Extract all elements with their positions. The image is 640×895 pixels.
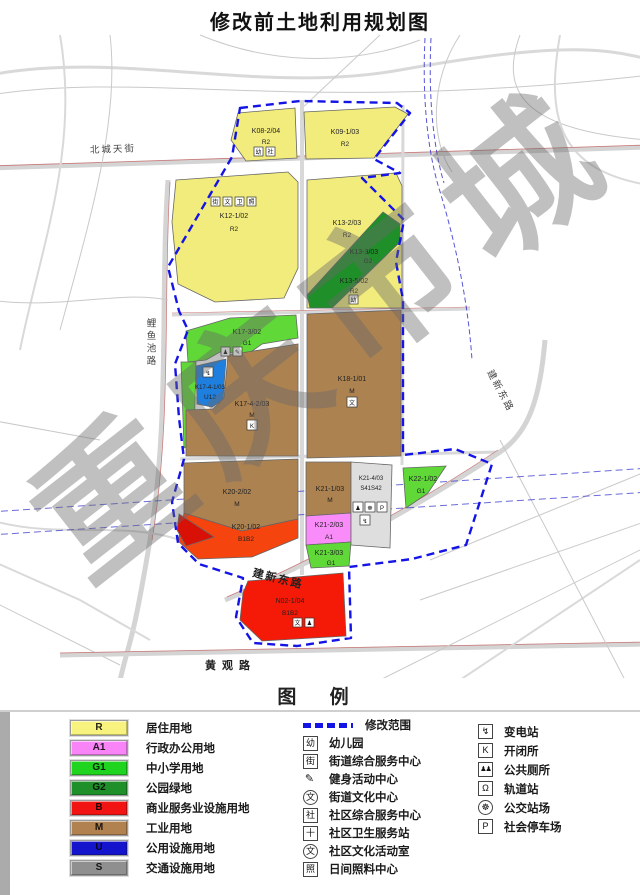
symbol-label: 街道文化中心 bbox=[329, 789, 398, 805]
culture-icon: 文 bbox=[347, 397, 357, 407]
legend-row-school: G1 中小学用地 bbox=[70, 758, 250, 778]
parcel-code: M bbox=[349, 388, 354, 395]
svg-text:K: K bbox=[250, 424, 254, 430]
svg-text:♟: ♟ bbox=[307, 620, 312, 627]
land-use-map: K08-2/04 R2 幼社 K09-1/03 R2 街文 卫照 K12-1/0… bbox=[0, 0, 640, 678]
svg-text:P: P bbox=[380, 506, 384, 512]
parcel-code: M bbox=[234, 501, 239, 508]
landuse-label: 交通设施用地 bbox=[146, 860, 215, 876]
switch-station-icon: K bbox=[478, 743, 493, 758]
legend-row-industrial: M 工业用地 bbox=[70, 818, 250, 838]
legend-symbols-column: 修改范围 幼 幼儿园 街 街道综合服务中心 ✎ 健身活动中心 文 街道文化中心 … bbox=[303, 716, 421, 878]
legend-row-fitness-center: ✎ 健身活动中心 bbox=[303, 770, 421, 788]
svg-text:♟: ♟ bbox=[355, 505, 360, 512]
landuse-swatch: G2 bbox=[70, 780, 128, 796]
road-label-huangguanlu: 黄观路 bbox=[205, 658, 256, 672]
landuse-label: 居住用地 bbox=[146, 720, 192, 736]
page-title: 修改前土地利用规划图 bbox=[0, 6, 640, 35]
symbol-label: 修改范围 bbox=[365, 717, 411, 733]
parcel-code: A1 bbox=[325, 534, 333, 541]
road-label-beichengtianjie: 北城天街 bbox=[90, 142, 136, 156]
svg-text:☸: ☸ bbox=[367, 505, 372, 512]
parcel-code: G2 bbox=[364, 258, 373, 265]
facility-label: 开闭所 bbox=[504, 743, 539, 759]
community-health-station-icon: 十 bbox=[303, 826, 318, 841]
parcel-code: R2 bbox=[343, 232, 352, 239]
parcel-id: K17-4-1/03 bbox=[195, 385, 225, 391]
facility-label: 公交站场 bbox=[504, 800, 550, 816]
community-culture-room-icon: 文 bbox=[303, 844, 318, 859]
landuse-swatch: A1 bbox=[70, 740, 128, 756]
legend-row-street-culture-center: 文 街道文化中心 bbox=[303, 788, 421, 806]
symbol-label: 日间照料中心 bbox=[329, 861, 398, 877]
parcel-id: K20-2/02 bbox=[223, 489, 252, 496]
parcel-id: N02-1/04 bbox=[276, 598, 305, 605]
parcel-id: K09-1/03 bbox=[331, 129, 360, 136]
legend-row-residential: R 居住用地 bbox=[70, 718, 250, 738]
legend-row-health-station: 十 社区卫生服务站 bbox=[303, 824, 421, 842]
parcel-id: K21-4/03 bbox=[359, 476, 384, 482]
parcel-id: K13-2/03 bbox=[333, 220, 362, 227]
legend-row-commercial: B 商业服务业设施用地 bbox=[70, 798, 250, 818]
legend-row-transport: S 交通设施用地 bbox=[70, 858, 250, 878]
parcel-id: K13-5/02 bbox=[340, 278, 369, 285]
legend-row-community-service-center: 社 社区综合服务中心 bbox=[303, 806, 421, 824]
parcel-id: K12-1/02 bbox=[220, 213, 249, 220]
legend-row-rail-station: Ω 轨道站 bbox=[478, 779, 562, 798]
legend-row-daycare-center: 照 日间照料中心 bbox=[303, 860, 421, 878]
parcel-code: R2 bbox=[230, 226, 239, 233]
svg-text:幼: 幼 bbox=[255, 148, 261, 156]
parcel-id: K21-2/03 bbox=[315, 522, 344, 529]
parcel-code: S41S42 bbox=[360, 486, 382, 492]
legend-landuse-column: R 居住用地 A1 行政办公用地 G1 中小学用地 G2 公园绿地 B 商业服务… bbox=[70, 718, 250, 878]
parcel-id: K08-2/04 bbox=[252, 128, 281, 135]
legend-facilities-column: ↯ 变电站 K 开闭所 ♟♟ 公共厕所 Ω 轨道站 ☸ 公交站场 P 社会停车场 bbox=[478, 722, 562, 836]
parcel-code: R2 bbox=[341, 141, 350, 148]
landuse-swatch: M bbox=[70, 820, 128, 836]
parcel-code: G1 bbox=[243, 340, 252, 347]
landuse-label: 工业用地 bbox=[146, 820, 192, 836]
landuse-swatch: B bbox=[70, 800, 128, 816]
symbol-label: 社区文化活动室 bbox=[329, 843, 410, 859]
legend-row-street-service-center: 街 街道综合服务中心 bbox=[303, 752, 421, 770]
street-service-center-icon: 街 bbox=[303, 754, 318, 769]
svg-text:文: 文 bbox=[224, 198, 230, 206]
legend-row-substation: ↯ 变电站 bbox=[478, 722, 562, 741]
legend-row-admin-office: A1 行政办公用地 bbox=[70, 738, 250, 758]
planning-map-page: 修改前土地利用规划图 bbox=[0, 0, 640, 895]
rail-station-icon: Ω bbox=[478, 781, 493, 796]
landuse-label: 公园绿地 bbox=[146, 780, 192, 796]
legend-divider bbox=[0, 710, 640, 712]
legend-row-bus-depot: ☸ 公交站场 bbox=[478, 798, 562, 817]
legend-row-public-parking: P 社会停车场 bbox=[478, 817, 562, 836]
svg-text:社: 社 bbox=[267, 148, 273, 156]
parcel-shape-K12 bbox=[172, 172, 298, 302]
kindergarten-icon: 幼 bbox=[349, 295, 358, 304]
road-label-liyuchilu: 鲤鱼池路 bbox=[145, 317, 157, 368]
parcel-id: K20-1/02 bbox=[232, 524, 261, 531]
parcel-id: K21-1/03 bbox=[316, 486, 345, 493]
substation-icon: ↯ bbox=[203, 367, 213, 377]
svg-text:卫: 卫 bbox=[236, 199, 242, 206]
landuse-label: 公用设施用地 bbox=[146, 840, 215, 856]
landuse-swatch: R bbox=[70, 720, 128, 736]
svg-text:♟: ♟ bbox=[223, 349, 228, 356]
legend-row-park-green: G2 公园绿地 bbox=[70, 778, 250, 798]
parcel-id: K18-1/01 bbox=[338, 376, 367, 383]
legend-row-modification-range: 修改范围 bbox=[303, 716, 421, 734]
symbol-label: 健身活动中心 bbox=[329, 771, 398, 787]
daycare-center-icon: 照 bbox=[303, 862, 318, 877]
parcel-code: M bbox=[327, 497, 332, 504]
landuse-swatch: S bbox=[70, 860, 128, 876]
symbol-label: 幼儿园 bbox=[329, 735, 364, 751]
svg-text:文: 文 bbox=[349, 399, 355, 407]
parcel-id: K21-3/03 bbox=[315, 550, 344, 557]
parcel-id: K17-4-2/03 bbox=[235, 401, 270, 408]
facility-label: 公共厕所 bbox=[504, 762, 550, 778]
parcel-id: K22-1/02 bbox=[409, 476, 438, 483]
road-label-jianxindonglu-east: 建新东路 bbox=[484, 368, 516, 414]
svg-text:✎: ✎ bbox=[235, 349, 240, 356]
landuse-label: 中小学用地 bbox=[146, 760, 204, 776]
svg-text:↯: ↯ bbox=[362, 518, 367, 525]
parcel-code: B1B2 bbox=[282, 610, 298, 617]
parcel-code: R2 bbox=[262, 139, 271, 146]
landuse-swatch: G1 bbox=[70, 760, 128, 776]
parcel-code: R2 bbox=[350, 288, 359, 295]
public-parking-icon: P bbox=[478, 819, 493, 834]
svg-text:幼: 幼 bbox=[350, 296, 356, 304]
parcel-id: K13-3/03 bbox=[350, 249, 379, 256]
community-service-center-icon: 社 bbox=[303, 808, 318, 823]
legend-left-strip bbox=[0, 712, 10, 895]
parcel-code: G1 bbox=[327, 560, 336, 567]
kindergarten-icon: 幼 bbox=[303, 736, 318, 751]
legend-row-kindergarten: 幼 幼儿园 bbox=[303, 734, 421, 752]
symbol-label: 街道综合服务中心 bbox=[329, 753, 421, 769]
parcel-id: K17-3/02 bbox=[233, 329, 262, 336]
parcel-code: M bbox=[249, 412, 254, 419]
landuse-label: 商业服务业设施用地 bbox=[146, 800, 250, 816]
fitness-center-icon: ✎ bbox=[303, 773, 316, 786]
street-culture-center-icon: 文 bbox=[303, 790, 318, 805]
legend-panel: 图 例 R 居住用地 A1 行政办公用地 G1 中小学用地 G2 公园绿地 B bbox=[0, 678, 640, 895]
landuse-swatch: U bbox=[70, 840, 128, 856]
public-toilet-icon: ♟♟ bbox=[478, 762, 493, 777]
facility-label: 轨道站 bbox=[504, 781, 539, 797]
bus-depot-icon: ☸ bbox=[478, 800, 493, 815]
legend-row-community-culture-room: 文 社区文化活动室 bbox=[303, 842, 421, 860]
svg-text:街: 街 bbox=[212, 198, 218, 206]
svg-text:文: 文 bbox=[294, 619, 300, 627]
svg-text:照: 照 bbox=[248, 199, 254, 206]
legend-row-public-toilet: ♟♟ 公共厕所 bbox=[478, 760, 562, 779]
modification-range-dash bbox=[303, 723, 355, 728]
symbol-label: 社区综合服务中心 bbox=[329, 807, 421, 823]
svg-text:↯: ↯ bbox=[205, 370, 210, 377]
symbol-label: 社区卫生服务站 bbox=[329, 825, 410, 841]
parcel-code: U12 bbox=[204, 394, 216, 401]
landuse-label: 行政办公用地 bbox=[146, 740, 215, 756]
legend-row-utilities: U 公用设施用地 bbox=[70, 838, 250, 858]
facility-label: 变电站 bbox=[504, 724, 539, 740]
parcel-code: G1 bbox=[417, 488, 426, 495]
switch-station-icon: K bbox=[247, 420, 257, 430]
legend-row-switch-station: K 开闭所 bbox=[478, 741, 562, 760]
substation-icon: ↯ bbox=[478, 724, 493, 739]
parcel-code: B1B2 bbox=[238, 536, 254, 543]
legend-header: 图 例 bbox=[0, 682, 640, 709]
parcel-shape-K18 bbox=[307, 310, 401, 458]
facility-label: 社会停车场 bbox=[504, 819, 562, 835]
